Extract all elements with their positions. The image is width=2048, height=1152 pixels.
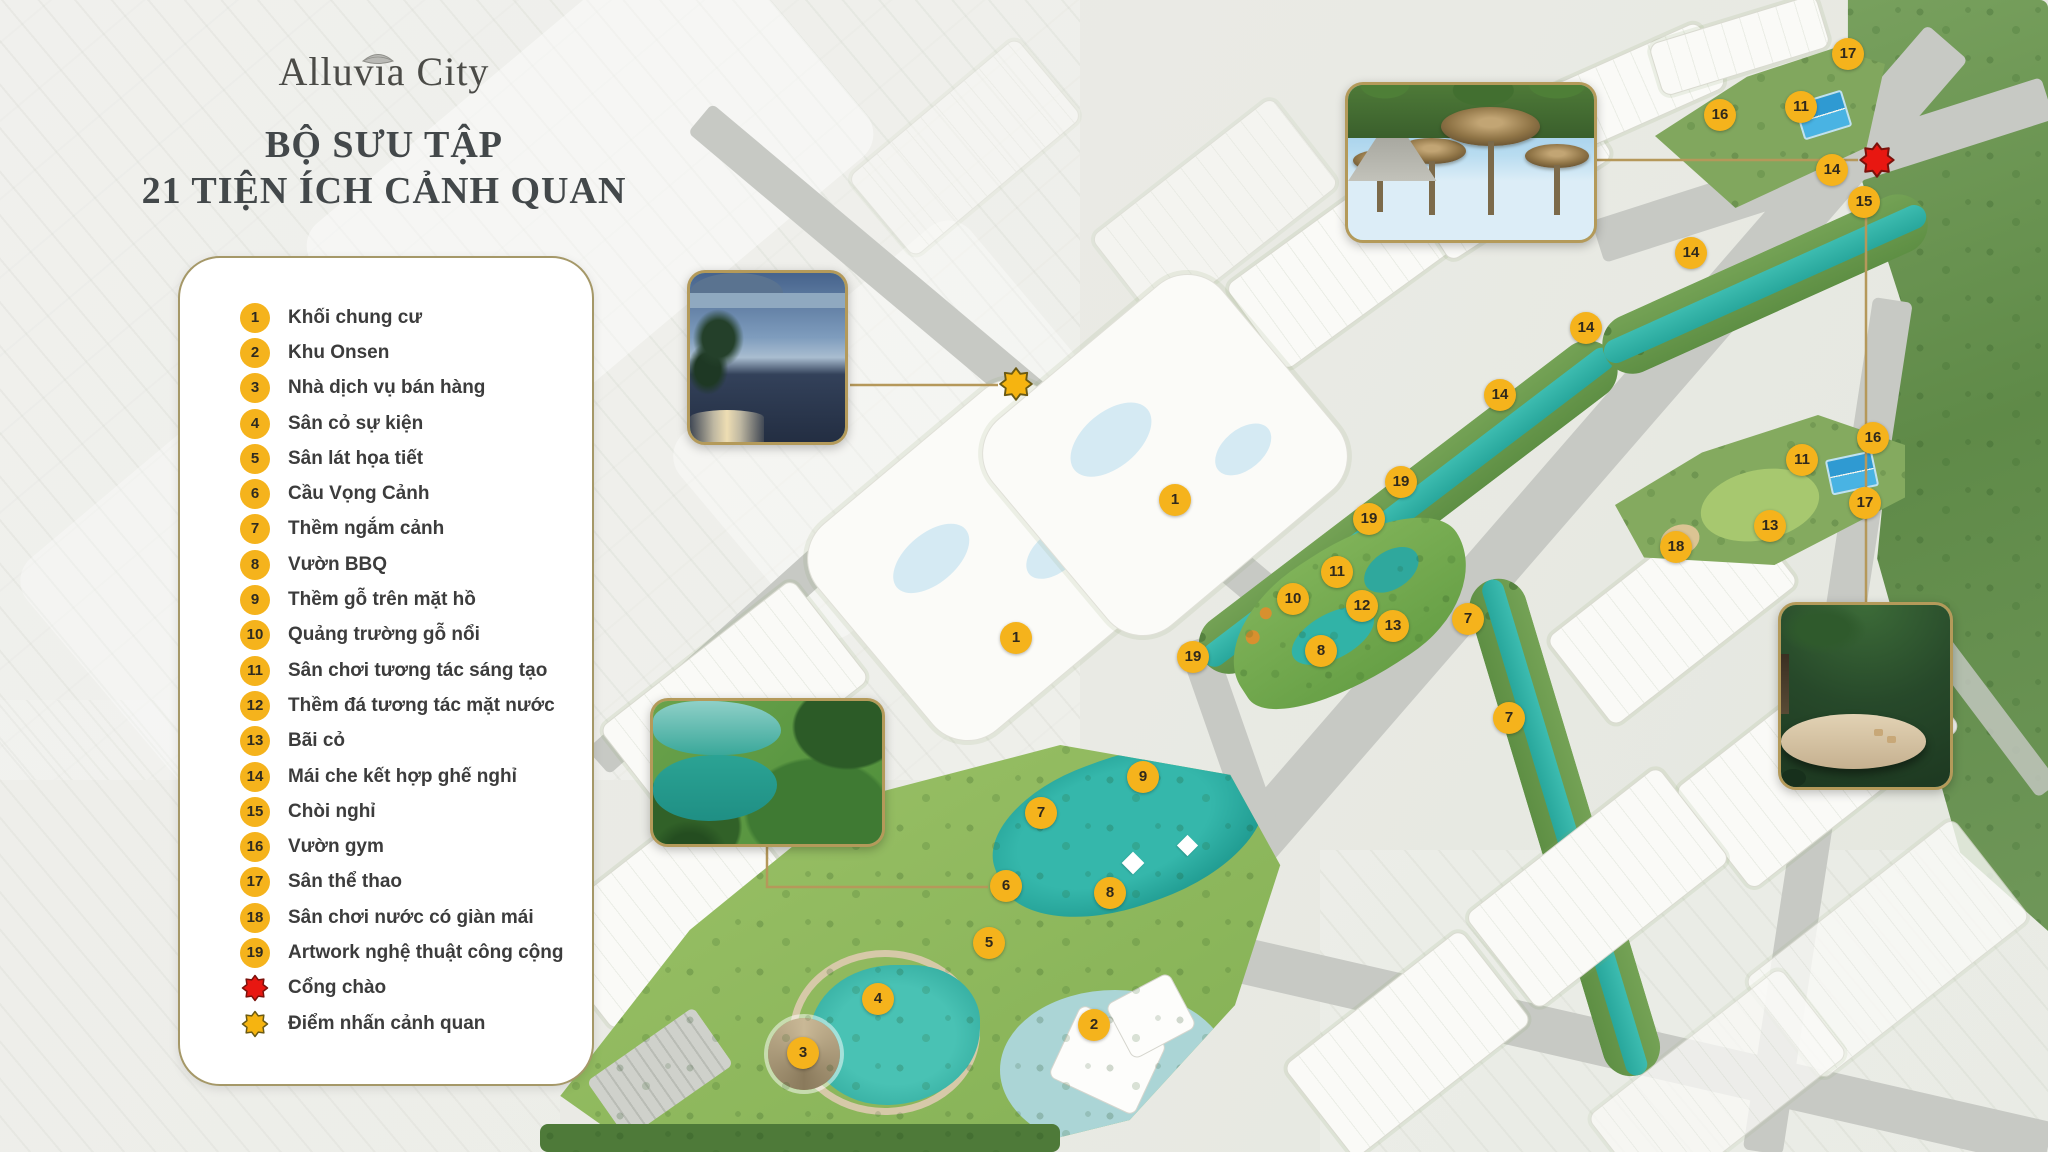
legend-item: 2Khu Onsen [240, 335, 592, 370]
legend-item-label: Điểm nhấn cảnh quan [288, 1013, 485, 1035]
legend-badge: 9 [240, 585, 270, 615]
park-pond [810, 965, 980, 1105]
legend-item-label: Vườn gym [288, 836, 384, 858]
map-marker-10: 10 [1277, 583, 1309, 615]
legend-item-label: Vườn BBQ [288, 554, 387, 576]
map-marker-7: 7 [1452, 603, 1484, 635]
map-marker-1: 1 [1000, 622, 1032, 654]
lake-bridge-photo [650, 698, 885, 847]
map-marker-14: 14 [1570, 312, 1602, 344]
map-yellow-star [997, 365, 1035, 403]
park-path-ring [790, 950, 980, 1115]
legend-item-label: Khu Onsen [288, 342, 389, 364]
map-marker-7: 7 [1025, 797, 1057, 829]
legend-rows: 1Khối chung cư2Khu Onsen3Nhà dịch vụ bán… [240, 300, 592, 1041]
legend-item-label: Cổng chào [288, 977, 386, 999]
legend-item-label: Artwork nghệ thuật công cộng [288, 942, 564, 964]
legend-item: 3Nhà dịch vụ bán hàng [240, 371, 592, 406]
legend-item-label: Bãi cỏ [288, 730, 345, 752]
yellow-star-icon [240, 1009, 270, 1039]
map-marker-18: 18 [1660, 531, 1692, 563]
map-marker-2: 2 [1078, 1009, 1110, 1041]
masterplan-canvas: 1716111415141414191916111713181110121378… [0, 0, 2048, 1152]
map-marker-17: 17 [1849, 487, 1881, 519]
legend-item: 19Artwork nghệ thuật công cộng [240, 935, 592, 970]
map-marker-15: 15 [1848, 186, 1880, 218]
legend-item: 13Bãi cỏ [240, 724, 592, 759]
legend-badge: 15 [240, 797, 270, 827]
page-title: BỘ SƯU TẬP 21 TIỆN ÍCH CẢNH QUAN [104, 122, 664, 215]
legend-item: Cổng chào [240, 971, 592, 1006]
legend-item-label: Sân chơi nước có giàn mái [288, 907, 534, 929]
legend-item-label: Quảng trường gỗ nổi [288, 624, 480, 646]
legend-item-label: Sân cỏ sự kiện [288, 413, 423, 435]
map-marker-5: 5 [973, 927, 1005, 959]
legend-badge: 14 [240, 762, 270, 792]
legend-item: 14Mái che kết hợp ghế nghỉ [240, 759, 592, 794]
legend-badge: 17 [240, 867, 270, 897]
legend-badge: 10 [240, 620, 270, 650]
legend-item: 15Chòi nghỉ [240, 794, 592, 829]
map-marker-12: 12 [1346, 590, 1378, 622]
map-marker-1: 1 [1159, 484, 1191, 516]
legend-item: 7Thềm ngắm cảnh [240, 512, 592, 547]
legend-item: 8Vườn BBQ [240, 547, 592, 582]
map-marker-19: 19 [1385, 466, 1417, 498]
brand-logo: Alluvia City [184, 48, 584, 95]
map-marker-11: 11 [1786, 444, 1818, 476]
legend-badge: 7 [240, 514, 270, 544]
legend-item: 4Sân cỏ sự kiện [240, 406, 592, 441]
legend-badge: 4 [240, 409, 270, 439]
legend-item-label: Mái che kết hợp ghế nghỉ [288, 766, 517, 788]
legend-item-label: Sân chơi tương tác sáng tạo [288, 660, 547, 682]
legend-badge: 11 [240, 656, 270, 686]
map-marker-13: 13 [1754, 510, 1786, 542]
parking-lot [587, 1007, 734, 1139]
legend-item: 9Thềm gỗ trên mặt hồ [240, 582, 592, 617]
legend-item: 5Sân lát họa tiết [240, 441, 592, 476]
legend-badge: 1 [240, 303, 270, 333]
legend-item: 1Khối chung cư [240, 300, 592, 335]
map-marker-19: 19 [1177, 641, 1209, 673]
legend-item-label: Sân thể thao [288, 871, 402, 893]
legend-item-label: Sân lát họa tiết [288, 448, 423, 470]
legend-badge: 8 [240, 550, 270, 580]
legend-item-label: Khối chung cư [288, 307, 422, 329]
legend-item: 6Cầu Vọng Cảnh [240, 476, 592, 511]
legend-item-label: Thềm ngắm cảnh [288, 518, 444, 540]
map-marker-14: 14 [1816, 154, 1848, 186]
map-marker-16: 16 [1857, 422, 1889, 454]
map-marker-9: 9 [1127, 761, 1159, 793]
entrance-gate-photo [1345, 82, 1597, 243]
legend-item-label: Thềm gỗ trên mặt hồ [288, 589, 476, 611]
map-marker-8: 8 [1305, 635, 1337, 667]
map-marker-14: 14 [1675, 237, 1707, 269]
title-line2: 21 TIỆN ÍCH CẢNH QUAN [104, 168, 664, 214]
legend-item-label: Nhà dịch vụ bán hàng [288, 377, 485, 399]
legend-badge: 5 [240, 444, 270, 474]
map-red-star [1857, 140, 1897, 180]
legend-badge: 6 [240, 479, 270, 509]
legend-badge: 18 [240, 903, 270, 933]
red-star-icon [240, 973, 270, 1003]
legend-item: 16Vườn gym [240, 829, 592, 864]
legend-badge: 3 [240, 373, 270, 403]
legend-item: 18Sân chơi nước có giàn mái [240, 900, 592, 935]
legend-badge: 19 [240, 938, 270, 968]
legend-item-label: Chòi nghỉ [288, 801, 376, 823]
legend-badge: 2 [240, 338, 270, 368]
map-marker-7: 7 [1493, 702, 1525, 734]
map-marker-11: 11 [1321, 556, 1353, 588]
legend-item-label: Thềm đá tương tác mặt nước [288, 695, 555, 717]
leaf-icon [360, 32, 396, 79]
map-marker-14: 14 [1484, 379, 1516, 411]
legend-item: Điểm nhấn cảnh quan [240, 1006, 592, 1041]
legend-badge: 12 [240, 691, 270, 721]
legend-item: 17Sân thể thao [240, 865, 592, 900]
map-marker-11: 11 [1785, 91, 1817, 123]
map-marker-6: 6 [990, 870, 1022, 902]
canopy-tent [1122, 852, 1145, 875]
legend-item: 10Quảng trường gỗ nổi [240, 618, 592, 653]
canopy-tent [1177, 835, 1198, 856]
map-marker-8: 8 [1094, 877, 1126, 909]
legend-item-label: Cầu Vọng Cảnh [288, 483, 429, 505]
legend-item: 12Thềm đá tương tác mặt nước [240, 688, 592, 723]
map-marker-3: 3 [787, 1037, 819, 1069]
tree-row [540, 1124, 1060, 1152]
fountain-photo [687, 270, 848, 445]
onsen-building [1105, 972, 1198, 1061]
legend-badge: 13 [240, 726, 270, 756]
legend-panel: 1Khối chung cư2Khu Onsen3Nhà dịch vụ bán… [178, 256, 594, 1086]
map-marker-16: 16 [1704, 99, 1736, 131]
title-line1: BỘ SƯU TẬP [104, 122, 664, 168]
map-marker-13: 13 [1377, 610, 1409, 642]
legend-badge: 16 [240, 832, 270, 862]
map-marker-17: 17 [1832, 38, 1864, 70]
pavilion-photo [1778, 602, 1953, 790]
map-marker-4: 4 [862, 983, 894, 1015]
legend-item: 11Sân chơi tương tác sáng tạo [240, 653, 592, 688]
map-marker-19: 19 [1353, 503, 1385, 535]
